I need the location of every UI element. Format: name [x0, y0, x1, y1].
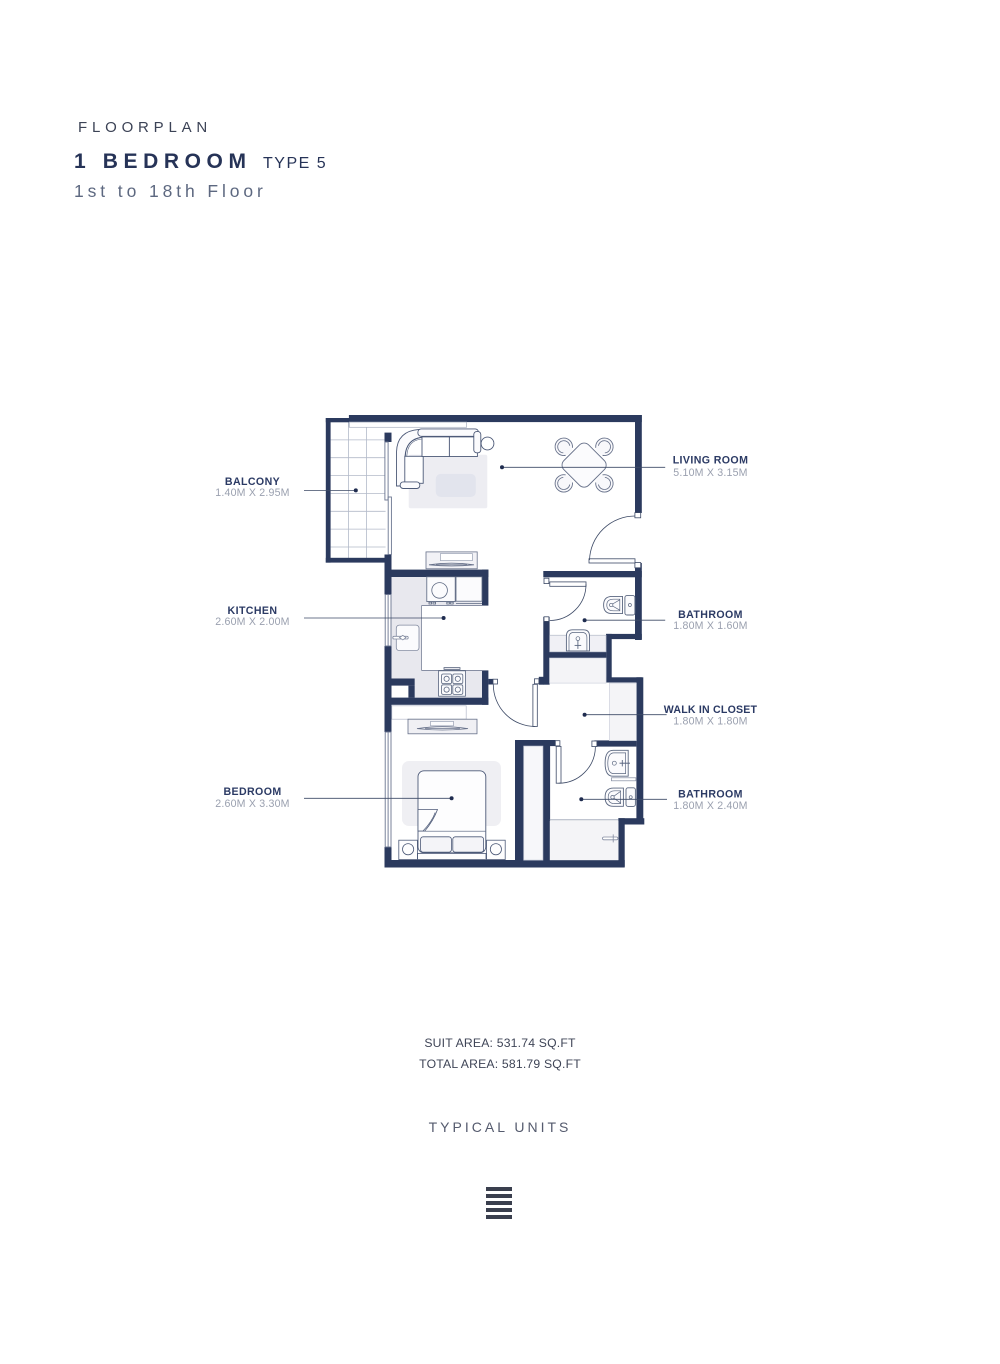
svg-text:2.60M X 3.30M: 2.60M X 3.30M	[215, 798, 289, 810]
svg-text:1.80M X 2.40M: 1.80M X 2.40M	[673, 800, 747, 812]
svg-text:1.80M X 1.60M: 1.80M X 1.60M	[673, 620, 747, 632]
svg-text:1.80M X 1.80M: 1.80M X 1.80M	[673, 715, 747, 727]
svg-text:2.60M X 2.00M: 2.60M X 2.00M	[215, 616, 289, 628]
svg-text:WALK IN CLOSET: WALK IN CLOSET	[664, 704, 758, 716]
svg-text:BATHROOM: BATHROOM	[678, 789, 743, 801]
svg-text:BEDROOM: BEDROOM	[223, 786, 281, 798]
svg-text:1.40M X 2.95M: 1.40M X 2.95M	[215, 487, 289, 499]
svg-text:5.10M X 3.15M: 5.10M X 3.15M	[673, 467, 747, 479]
svg-text:LIVING ROOM: LIVING ROOM	[673, 455, 749, 467]
